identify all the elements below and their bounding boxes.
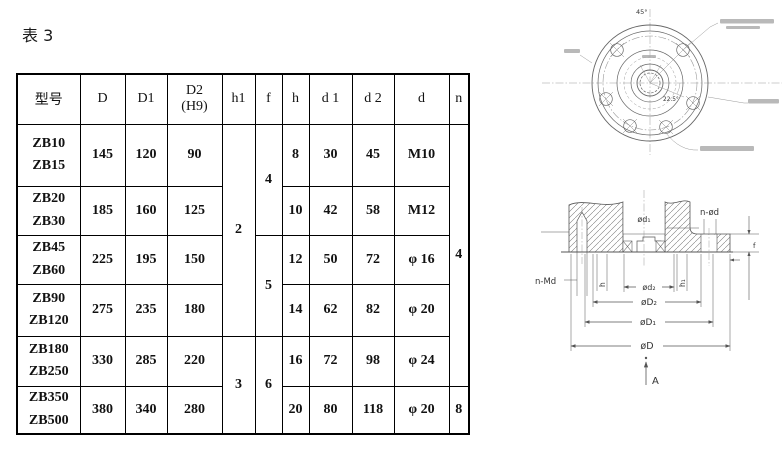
cell-d: M12 — [394, 186, 449, 235]
model-name: ZB30 — [18, 211, 80, 233]
cell-D2: 90 — [167, 124, 222, 186]
cell-d2: 98 — [352, 336, 394, 386]
cell-h: 8 — [282, 124, 309, 186]
cell-D2: 125 — [167, 186, 222, 235]
hub-angle-lines — [640, 65, 661, 83]
cell-d2: 82 — [352, 284, 394, 336]
section-right-body — [665, 201, 730, 252]
cell-D1: 120 — [125, 124, 167, 186]
cell-h: 16 — [282, 336, 309, 386]
A-dot — [645, 357, 647, 359]
header-model: 型号 — [17, 74, 80, 124]
cell-h: 12 — [282, 235, 309, 284]
cell-h: 14 — [282, 284, 309, 336]
cell-f-merged: 5 — [255, 235, 282, 336]
model-name: ZB45 — [18, 237, 80, 259]
cell-D1: 285 — [125, 336, 167, 386]
cell-n: 8 — [449, 386, 469, 434]
angle-22-5-label: 22.5° — [663, 97, 679, 103]
model-name: ZB180 — [18, 339, 80, 361]
page-title: 表 3 — [22, 22, 53, 46]
label-D: øD — [640, 341, 653, 352]
cell-h1-merged: 3 — [222, 336, 255, 434]
label-D2: øD₂ — [641, 298, 657, 308]
n-Md-leaders — [564, 252, 587, 296]
cell-D: 275 — [80, 284, 125, 336]
model-name: ZB90 — [18, 288, 80, 310]
header-h1: h1 — [222, 74, 255, 124]
cell-models: ZB20 ZB30 — [17, 186, 80, 235]
cell-D2: 220 — [167, 336, 222, 386]
cell-D: 185 — [80, 186, 125, 235]
header-D2-main: D2 — [168, 83, 222, 99]
model-name: ZB120 — [18, 310, 80, 332]
cell-d1: 50 — [309, 235, 352, 284]
cell-h1-merged: 2 — [222, 124, 255, 336]
label-h1: h₁ — [678, 279, 687, 287]
cell-D2: 180 — [167, 284, 222, 336]
model-name: ZB500 — [18, 410, 80, 432]
annotation-illegible-text — [564, 19, 779, 151]
label-n-od: n-ød — [700, 208, 719, 218]
cell-D1: 235 — [125, 284, 167, 336]
cell-h: 10 — [282, 186, 309, 235]
model-name: ZB20 — [18, 188, 80, 210]
cell-d2: 58 — [352, 186, 394, 235]
cell-d: φ 16 — [394, 235, 449, 284]
angle-arc — [677, 83, 680, 94]
cell-D: 145 — [80, 124, 125, 186]
cell-d: φ 20 — [394, 386, 449, 434]
cell-d1: 62 — [309, 284, 352, 336]
model-name: ZB15 — [18, 155, 80, 177]
table-header-row: 型号 D D1 D2 (H9) h1 f h d 1 d 2 d n — [17, 74, 469, 124]
label-D1: øD₁ — [640, 318, 656, 328]
header-d1: d 1 — [309, 74, 352, 124]
header-D2: D2 (H9) — [167, 74, 222, 124]
label-h: h — [598, 282, 607, 287]
radial-line-45 — [650, 41, 692, 83]
cell-d2: 72 — [352, 235, 394, 284]
model-name: ZB10 — [18, 133, 80, 155]
cell-D2: 280 — [167, 386, 222, 434]
cell-d: M10 — [394, 124, 449, 186]
cell-f-merged: 6 — [255, 336, 282, 434]
angle-45-label: 45° — [636, 8, 648, 16]
cell-d1: 42 — [309, 186, 352, 235]
cell-models: ZB350 ZB500 — [17, 386, 80, 434]
label-A: A — [652, 376, 659, 387]
header-f: f — [255, 74, 282, 124]
cell-f-merged: 4 — [255, 124, 282, 235]
cell-models: ZB180 ZB250 — [17, 336, 80, 386]
cell-models: ZB10 ZB15 — [17, 124, 80, 186]
data-table: 型号 D D1 D2 (H9) h1 f h d 1 d 2 d n ZB10 … — [16, 73, 470, 435]
label-d1: ød₁ — [637, 215, 650, 224]
table-row: ZB180 ZB250 330 285 220 3 6 16 72 98 φ 2… — [17, 336, 469, 386]
model-name: ZB60 — [18, 260, 80, 282]
label-f: f — [753, 242, 756, 250]
flange-section-view-drawing: ød₁ n-Md h h₁ ød₂ øD₂ øD₁ øD A n-ød f — [533, 188, 784, 403]
header-d: d — [394, 74, 449, 124]
label-n-Md: n-Md — [535, 277, 556, 287]
cell-d1: 80 — [309, 386, 352, 434]
cell-d: φ 24 — [394, 336, 449, 386]
header-D: D — [80, 74, 125, 124]
cell-d: φ 20 — [394, 284, 449, 336]
annotation-leaders — [580, 23, 748, 150]
header-D2-note: (H9) — [168, 99, 222, 115]
cell-D2: 150 — [167, 235, 222, 284]
model-name: ZB250 — [18, 361, 80, 383]
cell-D: 225 — [80, 235, 125, 284]
cell-D: 330 — [80, 336, 125, 386]
cell-D: 380 — [80, 386, 125, 434]
cell-D1: 160 — [125, 186, 167, 235]
model-name: ZB350 — [18, 387, 80, 409]
cell-n-merged: 4 — [449, 124, 469, 386]
cell-D1: 340 — [125, 386, 167, 434]
label-d2: ød₂ — [642, 283, 655, 292]
cell-models: ZB90 ZB120 — [17, 284, 80, 336]
header-D1: D1 — [125, 74, 167, 124]
cell-models: ZB45 ZB60 — [17, 235, 80, 284]
cell-d2: 118 — [352, 386, 394, 434]
table-row: ZB10 ZB15 145 120 90 2 4 8 30 45 M10 4 — [17, 124, 469, 186]
cell-d1: 72 — [309, 336, 352, 386]
header-d2: d 2 — [352, 74, 394, 124]
header-n: n — [449, 74, 469, 124]
cell-h: 20 — [282, 386, 309, 434]
cell-D1: 195 — [125, 235, 167, 284]
header-h: h — [282, 74, 309, 124]
cell-d1: 30 — [309, 124, 352, 186]
flange-front-view-drawing: 45° 22.5° — [540, 3, 784, 161]
cell-d2: 45 — [352, 124, 394, 186]
